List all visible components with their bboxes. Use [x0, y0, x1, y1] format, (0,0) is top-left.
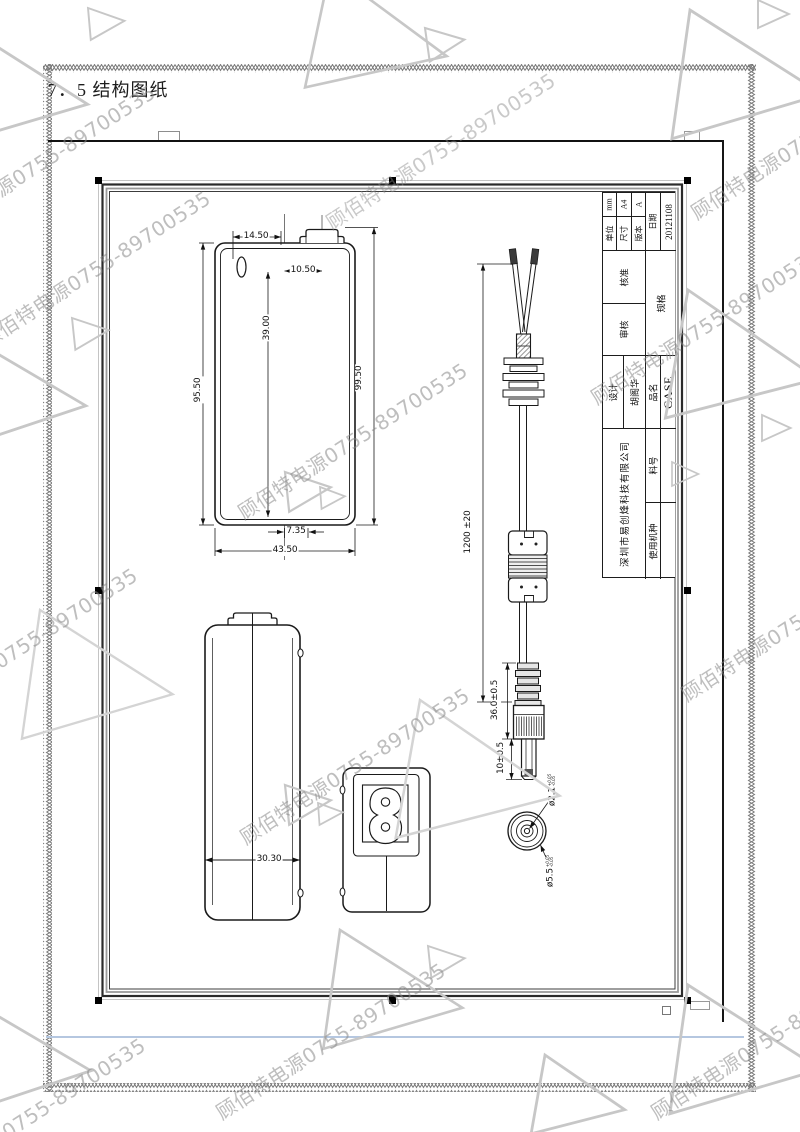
dim-label: 1200 ±20 — [464, 509, 474, 554]
inlet-view — [340, 768, 430, 912]
section-heading: 7．5 结构图纸 — [48, 76, 169, 102]
plug-end-view — [508, 801, 549, 862]
front-view — [199, 214, 378, 560]
dim-label: 43.50 — [272, 546, 299, 556]
dim-label: 10.50 — [290, 266, 317, 276]
selection-handle[interactable] — [684, 177, 691, 184]
tb-partno-value — [661, 429, 676, 503]
dim-label: ø5.5+0.05-0.05 — [546, 854, 556, 888]
selection-handle[interactable] — [95, 587, 102, 594]
tb-partno-label: 料号 — [646, 429, 661, 503]
tolerance-lower: -0.05 — [550, 855, 554, 867]
title-block: mm A4 A 单位 尺寸 版本 日期 20121108 核准 审核 规格 设计… — [602, 192, 675, 578]
tb-product-label: 品名 — [646, 356, 661, 429]
dim-label: 36.0±0.5 — [491, 679, 501, 721]
tb-approved: 核准 — [603, 251, 646, 304]
dim-label: ø2.1+0.05-0.05 — [548, 773, 558, 807]
document-page: 7．5 结构图纸 — [0, 0, 800, 1132]
selection-handle[interactable] — [684, 587, 691, 594]
tb-date-value: 20121108 — [661, 193, 676, 251]
selection-handle[interactable] — [389, 997, 396, 1004]
selection-handle[interactable] — [684, 997, 691, 1004]
dim-pin-text: ø2.1 — [547, 787, 557, 806]
selection-handle[interactable] — [95, 177, 102, 184]
selection-handle[interactable] — [95, 997, 102, 1004]
table-gridline — [46, 1036, 744, 1038]
tb-company: 深圳市易创烽科技有限公司 — [603, 429, 646, 579]
selection-handle[interactable] — [389, 177, 396, 184]
cad-line-art — [0, 0, 800, 1132]
tb-model-label: 使用机种 — [646, 503, 661, 579]
tb-version-value: A — [632, 193, 646, 217]
dim-label: 95.50 — [194, 377, 204, 404]
tb-design-label: 设计 — [603, 356, 624, 429]
dim-label: 10±0.5 — [497, 741, 507, 775]
dim-label: 30.30 — [256, 855, 283, 865]
tb-model-value — [661, 503, 676, 579]
tb-product-value: CASE — [661, 356, 676, 429]
tolerance-lower: -0.05 — [552, 774, 556, 786]
dim-label: 14.50 — [243, 232, 270, 242]
tb-spec: 规格 — [646, 251, 676, 356]
dim-label: 7.35 — [285, 527, 306, 537]
tb-size-value: A4 — [617, 193, 632, 217]
side-view — [205, 613, 303, 920]
dim-outer-text: ø5.5 — [545, 868, 555, 887]
dim-label: 39.00 — [263, 315, 273, 342]
dim-label: 99.50 — [355, 365, 365, 392]
tb-date-label: 日期 — [646, 193, 661, 251]
cable-view — [477, 249, 547, 780]
heading-rule — [48, 140, 723, 142]
tb-designer: 胡阁华 — [624, 356, 646, 429]
tb-unit-label: 单位 — [603, 217, 617, 251]
tb-size-label: 尺寸 — [617, 217, 632, 251]
tb-unit-value: mm — [603, 193, 617, 217]
right-border-line — [722, 140, 724, 1022]
tb-version-label: 版本 — [632, 217, 646, 251]
tb-reviewed: 审核 — [603, 304, 646, 356]
